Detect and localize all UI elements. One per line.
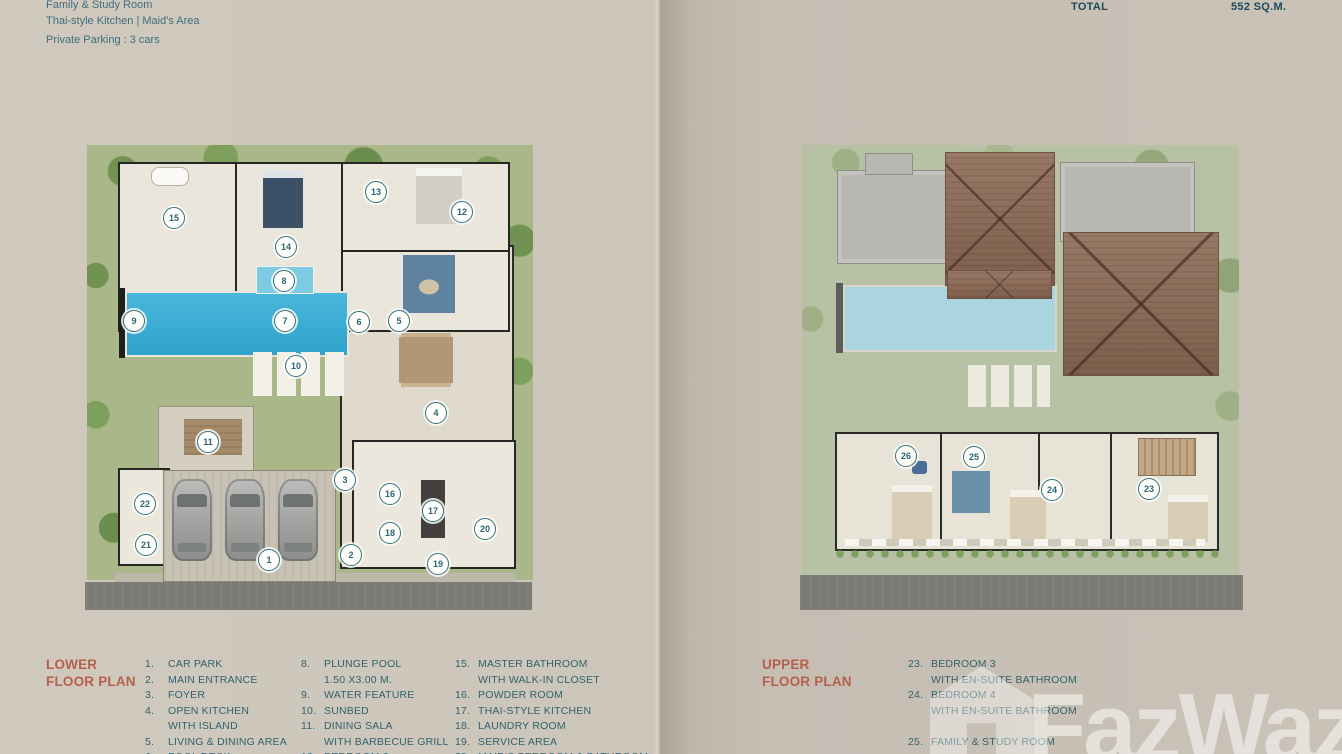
- legend-number: [145, 719, 168, 735]
- legend-number: 8.: [301, 657, 324, 673]
- title-line: FLOOR PLAN: [762, 674, 852, 691]
- pool-edge: [836, 283, 843, 353]
- legend-row: 24.BEDROOM 4: [908, 688, 1108, 704]
- title-line: UPPER: [762, 657, 852, 674]
- bed: [892, 485, 932, 540]
- legend-row: 20.MAID'S BEDROOM & BATHROOM: [455, 750, 645, 754]
- legend-label: LAUNDRY ROOM: [478, 719, 566, 735]
- legend-number: 19.: [455, 735, 478, 751]
- area-summary: TOTAL 552 SQ.M.: [0, 0, 1342, 16]
- legend-number: [301, 735, 324, 751]
- legend-label: [931, 719, 934, 735]
- legend-number: 25.: [908, 735, 931, 751]
- roof-eave: [947, 270, 1052, 299]
- legend-label: BEDROOM 2: [324, 750, 389, 754]
- plan-marker-15: 15: [163, 207, 185, 229]
- plan-marker-23: 23: [1138, 478, 1160, 500]
- swimming-pool: [125, 291, 349, 357]
- legend-number: 18.: [455, 719, 478, 735]
- car-park: [163, 470, 336, 582]
- legend-label: THAI-STYLE KITCHEN: [478, 704, 591, 720]
- dining-table: [399, 337, 453, 383]
- legend-label: WITH EN-SUITE BATHROOM: [931, 673, 1077, 689]
- legend-row: WITH EN-SUITE BATHROOM: [908, 704, 1108, 720]
- legend-label: WITH ISLAND: [168, 719, 238, 735]
- street: [800, 575, 1243, 610]
- hip-roof: [1063, 232, 1219, 376]
- legend-row: [908, 719, 1108, 735]
- legend-label: MAIN ENTRANCE: [168, 673, 258, 689]
- car: [172, 479, 212, 561]
- total-label: TOTAL: [1071, 1, 1108, 13]
- legend-row: WITH BARBECUE GRILL: [301, 735, 455, 751]
- legend-row: WITH ISLAND: [145, 719, 301, 735]
- interior-wall: [1110, 434, 1112, 545]
- legend-number: 11.: [301, 719, 324, 735]
- legend-number: [908, 704, 931, 720]
- legend-number: [908, 673, 931, 689]
- legend-row: 5.LIVING & DINING AREA: [145, 735, 301, 751]
- plan-marker-5: 5: [388, 310, 410, 332]
- legend-row: 23.BEDROOM 3: [908, 657, 1108, 673]
- legend-label: SERVICE AREA: [478, 735, 557, 751]
- legend-row: 15.MASTER BATHROOM: [455, 657, 645, 673]
- plan-marker-7: 7: [274, 310, 296, 332]
- legend-number: 16.: [455, 688, 478, 704]
- legend-label: FOYER: [168, 688, 205, 704]
- legend-number: 2.: [145, 673, 168, 689]
- legend-label: MAID'S BEDROOM & BATHROOM: [478, 750, 648, 754]
- legend-label: CAR PARK: [168, 657, 223, 673]
- flat-roof: [1060, 162, 1195, 242]
- legend-label: BEDROOM 4: [931, 688, 996, 704]
- legend-row: 12.BEDROOM 2: [301, 750, 455, 754]
- legend-number: 17.: [455, 704, 478, 720]
- bed: [1010, 490, 1046, 543]
- car: [225, 479, 265, 561]
- legend-label: SUNBED: [324, 704, 369, 720]
- legend-number: [301, 673, 324, 689]
- legend-number: 23.: [908, 657, 931, 673]
- legend-row: 6.POOL DECK: [145, 750, 301, 754]
- sunbeds: [968, 365, 1050, 407]
- plan-marker-19: 19: [427, 553, 449, 575]
- flat-roof: [837, 170, 954, 264]
- legend-label: POWDER ROOM: [478, 688, 563, 704]
- plan-marker-2: 2: [340, 544, 362, 566]
- legend-label: WITH WALK-IN CLOSET: [478, 673, 600, 689]
- legend-label: OPEN KITCHEN: [168, 704, 249, 720]
- legend-label: 1.50 X3.00 M.: [324, 673, 392, 689]
- plan-marker-11: 11: [197, 431, 219, 453]
- legend-row: WITH WALK-IN CLOSET: [455, 673, 645, 689]
- legend-row: 1.50 X3.00 M.: [301, 673, 455, 689]
- window-row: [845, 539, 1205, 546]
- brochure-page: Family & Study Room Thai-style Kitchen |…: [0, 0, 1342, 754]
- staircase: [1138, 438, 1196, 476]
- plan-marker-8: 8: [273, 270, 295, 292]
- legend-row: 19.SERVICE AREA: [455, 735, 645, 751]
- legend-number: 10.: [301, 704, 324, 720]
- legend-row: 9.WATER FEATURE: [301, 688, 455, 704]
- legend-label: WITH BARBECUE GRILL: [324, 735, 449, 751]
- flat-roof: [865, 153, 913, 175]
- legend-number: 6.: [145, 750, 168, 754]
- legend-label: DINING SALA: [324, 719, 393, 735]
- lower-legend-column-1: 1.CAR PARK2.MAIN ENTRANCE3.FOYER4.OPEN K…: [145, 657, 301, 754]
- plan-marker-13: 13: [365, 181, 387, 203]
- upper-floor-plan-title: UPPER FLOOR PLAN: [762, 657, 852, 690]
- legend-label: BEDROOM 3: [931, 657, 996, 673]
- legend-label: MASTER BATHROOM: [478, 657, 588, 673]
- legend-row: 4.OPEN KITCHEN: [145, 704, 301, 720]
- plan-marker-21: 21: [135, 534, 157, 556]
- legend-row: 1.CAR PARK: [145, 657, 301, 673]
- plan-marker-22: 22: [134, 493, 156, 515]
- legend-row: 25.FAMILY & STUDY ROOM: [908, 735, 1108, 751]
- legend-label: POOL DECK: [168, 750, 231, 754]
- interior-wall: [343, 250, 508, 252]
- legend-label: LIVING & DINING AREA: [168, 735, 287, 751]
- plan-marker-17: 17: [422, 500, 444, 522]
- street: [85, 582, 532, 610]
- legend-number: 9.: [301, 688, 324, 704]
- car: [278, 479, 318, 561]
- plan-marker-1: 1: [258, 549, 280, 571]
- legend-number: [455, 673, 478, 689]
- plan-marker-18: 18: [379, 522, 401, 544]
- legend-number: 24.: [908, 688, 931, 704]
- upper-legend-column: 23.BEDROOM 3WITH EN-SUITE BATHROOM24.BED…: [908, 657, 1108, 750]
- bed: [1168, 495, 1208, 542]
- legend-label: WATER FEATURE: [324, 688, 415, 704]
- legend-row: 16.POWDER ROOM: [455, 688, 645, 704]
- legend-row: 2.MAIN ENTRANCE: [145, 673, 301, 689]
- legend-row: 10.SUNBED: [301, 704, 455, 720]
- legend-label: FAMILY & STUDY ROOM: [931, 735, 1055, 751]
- lower-floor-plan-title: LOWER FLOOR PLAN: [46, 657, 136, 690]
- plan-marker-14: 14: [275, 236, 297, 258]
- legend-number: [908, 719, 931, 735]
- title-line: LOWER: [46, 657, 136, 674]
- feature-line: Private Parking : 3 cars: [46, 32, 200, 48]
- legend-number: 3.: [145, 688, 168, 704]
- plan-marker-12: 12: [451, 201, 473, 223]
- plan-marker-24: 24: [1041, 479, 1063, 501]
- lower-legend-column-3: 15.MASTER BATHROOMWITH WALK-IN CLOSET16.…: [455, 657, 645, 754]
- legend-row: 8.PLUNGE POOL: [301, 657, 455, 673]
- bathtub: [151, 167, 189, 186]
- legend-number: 12.: [301, 750, 324, 754]
- legend-number: 15.: [455, 657, 478, 673]
- plan-marker-10: 10: [285, 355, 307, 377]
- legend-label: WITH EN-SUITE BATHROOM: [931, 704, 1077, 720]
- plan-marker-9: 9: [123, 310, 145, 332]
- living-room-rug: [403, 255, 455, 313]
- plan-marker-20: 20: [474, 518, 496, 540]
- legend-number: 4.: [145, 704, 168, 720]
- plan-marker-3: 3: [334, 469, 356, 491]
- family-room-rug: [952, 471, 990, 513]
- legend-row: 3.FOYER: [145, 688, 301, 704]
- hedge-row: [833, 548, 1221, 561]
- plan-marker-16: 16: [379, 483, 401, 505]
- plan-marker-26: 26: [895, 445, 917, 467]
- legend-row: 11.DINING SALA: [301, 719, 455, 735]
- legend-row: 17.THAI-STYLE KITCHEN: [455, 704, 645, 720]
- plan-marker-6: 6: [348, 311, 370, 333]
- legend-row: 18.LAUNDRY ROOM: [455, 719, 645, 735]
- title-line: FLOOR PLAN: [46, 674, 136, 691]
- master-bed: [263, 170, 303, 228]
- interior-wall: [940, 434, 942, 545]
- legend-number: 1.: [145, 657, 168, 673]
- upper-floor-plan-illustration: [800, 143, 1243, 610]
- lower-legend-column-2: 8.PLUNGE POOL1.50 X3.00 M.9.WATER FEATUR…: [301, 657, 455, 754]
- plan-marker-25: 25: [963, 446, 985, 468]
- hip-roof: [945, 152, 1055, 286]
- legend-number: 5.: [145, 735, 168, 751]
- plan-marker-4: 4: [425, 402, 447, 424]
- legend-number: 20.: [455, 750, 478, 754]
- legend-label: PLUNGE POOL: [324, 657, 401, 673]
- total-area-value: 552 SQ.M.: [1231, 1, 1286, 13]
- legend-row: WITH EN-SUITE BATHROOM: [908, 673, 1108, 689]
